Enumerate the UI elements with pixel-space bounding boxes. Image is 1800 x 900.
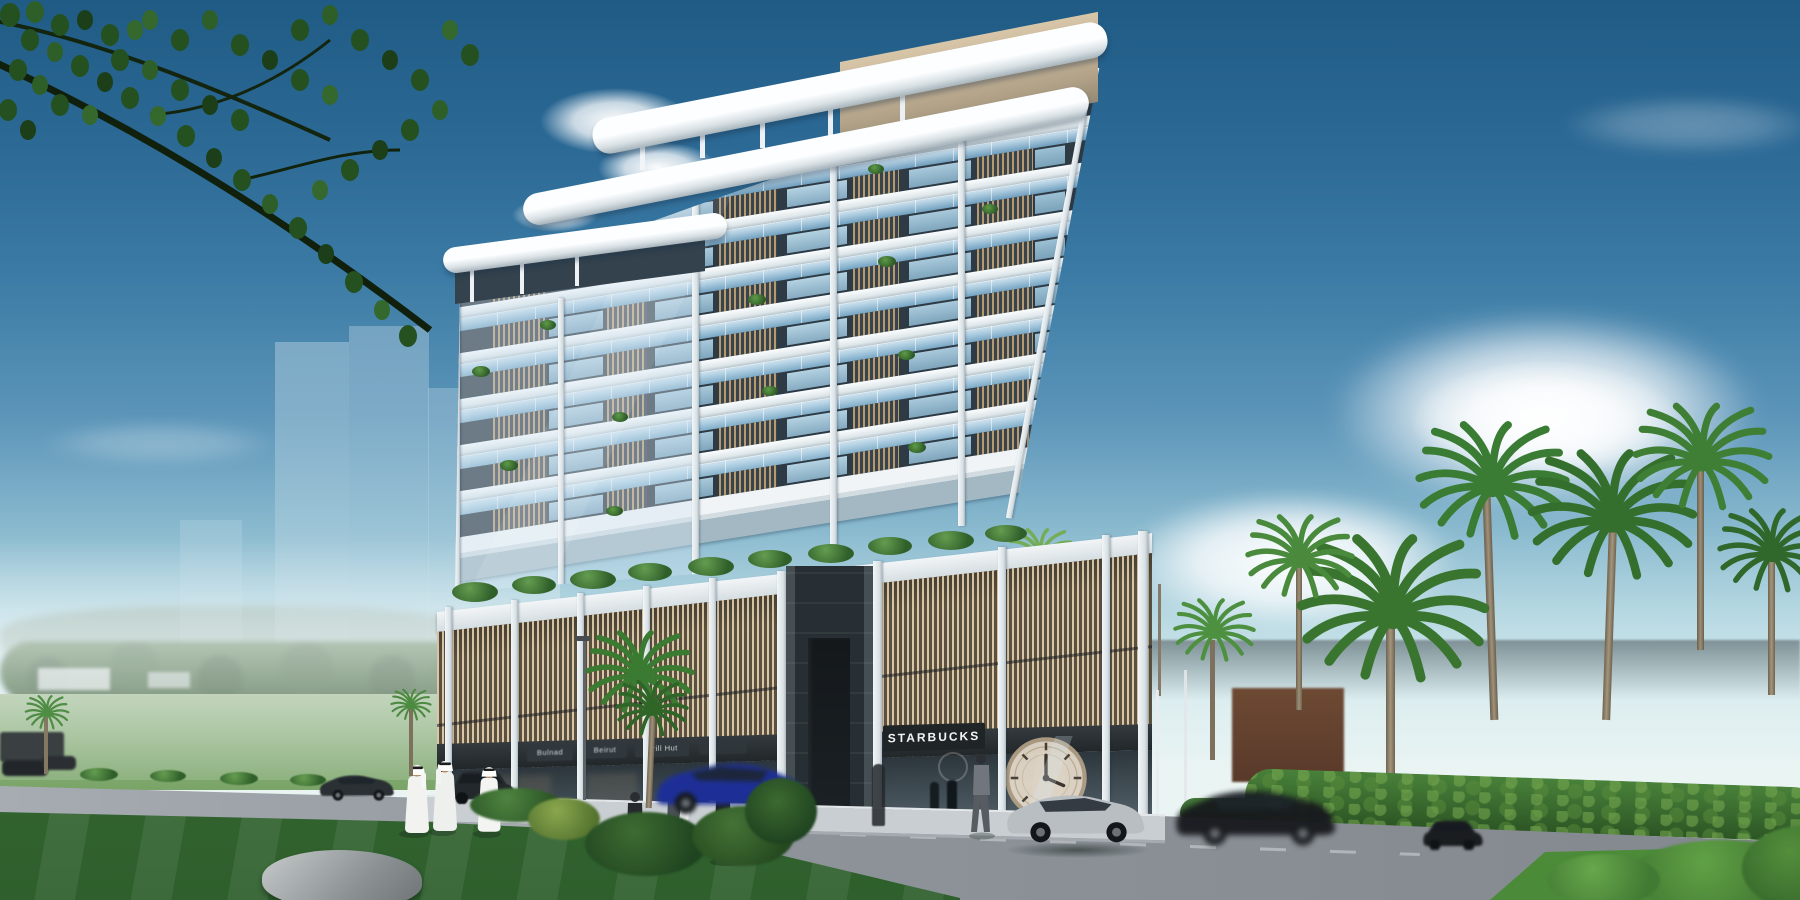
- bush: [1548, 854, 1660, 900]
- street-pole: [1156, 690, 1159, 816]
- balcony-plant: [868, 164, 884, 174]
- terrace-shrub: [452, 582, 498, 602]
- balcony-plant: [908, 442, 926, 453]
- balcony-plant: [612, 412, 628, 422]
- car-sedan-silver: [1000, 788, 1152, 846]
- starbucks-sign-label: STARBUCKS: [888, 729, 980, 746]
- scene-canvas: Bulnad Beirut Grill Hut STARBUCKS: [0, 0, 1800, 900]
- cloud: [40, 420, 280, 466]
- palm-tree: [12, 682, 82, 752]
- terrace-shrub: [688, 557, 734, 576]
- entrance-door: [808, 638, 850, 808]
- cloud: [1560, 95, 1800, 155]
- podium-pier: [1102, 535, 1110, 823]
- balcony-plant: [762, 386, 778, 396]
- roadside-shrub: [220, 772, 258, 785]
- bush: [585, 812, 707, 876]
- balcony-plant: [500, 460, 518, 471]
- terrace-shrub: [512, 576, 556, 594]
- car-under-palms: [1418, 816, 1488, 850]
- palm-tree: [592, 656, 712, 776]
- car-sedan-dark: [316, 772, 398, 802]
- doorway-figure: [872, 764, 885, 826]
- palm-tree: [1697, 486, 1800, 636]
- car-blurred-dark: [1168, 782, 1344, 850]
- terrace-shrub: [808, 544, 854, 563]
- man-in-suit: [962, 750, 1002, 842]
- terrace-shrub: [628, 563, 672, 581]
- overhanging-tree-branch: [0, 0, 520, 400]
- terrace-shrub: [928, 531, 974, 550]
- roadside-shrub: [150, 770, 186, 782]
- balcony-plant: [606, 506, 623, 516]
- balcony-plant: [898, 350, 915, 360]
- terrace-shrub: [985, 525, 1027, 542]
- starbucks-interior-figure: [947, 780, 957, 812]
- palm-tree: [378, 676, 444, 742]
- balcony-plant: [748, 294, 766, 305]
- balcony-plant: [982, 204, 998, 214]
- emirati-man: [433, 761, 457, 831]
- podium-pier: [1138, 531, 1148, 827]
- balcony-plant: [540, 320, 556, 330]
- terrace-shrub: [748, 550, 792, 568]
- roadside-shrub: [80, 768, 118, 781]
- balcony-plant: [878, 256, 896, 267]
- palm-tree: [1152, 576, 1277, 701]
- leaves: [0, 1, 479, 347]
- starbucks-sign: STARBUCKS: [883, 723, 985, 752]
- terrace-shrub: [868, 537, 912, 555]
- small-tree: [745, 778, 817, 844]
- terrace-shrub: [570, 570, 616, 589]
- shop-sign-label: Bulnad: [537, 747, 563, 757]
